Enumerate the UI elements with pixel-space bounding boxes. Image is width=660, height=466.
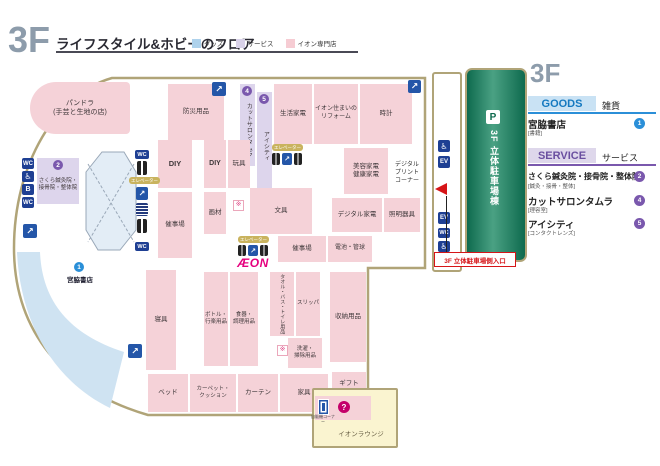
store-block-shoumei: 照明器具 <box>384 198 420 232</box>
lounge-label: イオンラウンジ <box>330 428 392 438</box>
service-item-category: [鍼灸・接骨・整体] <box>528 182 575 190</box>
store-block-slipper: スリッパ <box>296 272 320 336</box>
service-heading-ja: サービス <box>602 151 638 164</box>
toilet-icon: WC <box>135 150 149 159</box>
service-item-badge: 4 <box>634 195 645 206</box>
wheelchair-icon: ♿ <box>22 171 34 182</box>
store-block-pandora: パンドラ (手芸と生地の店) <box>30 82 130 134</box>
store-block-gazai: 画材 <box>204 192 226 234</box>
store-block-digital-kaden: デジタル家電 <box>332 198 382 232</box>
note-mark: ※ <box>277 345 288 356</box>
toilet-icon: WC <box>22 158 34 169</box>
toilet-icon: WC <box>438 228 450 238</box>
stairs-icon <box>136 203 148 216</box>
store-block-shunou: 収納用品 <box>330 272 366 362</box>
vending-caption: 自販機コーナー <box>310 415 336 425</box>
elevator-doors-icon <box>137 161 147 175</box>
toilet-icon: WC <box>135 242 149 251</box>
store-block-saijijo2: 催事場 <box>278 236 326 262</box>
goods-heading-ja: 雑貨 <box>602 99 620 112</box>
escalator-icon: ↗ <box>248 245 258 256</box>
store-block-towel: タオル・バス・トイレ用品 <box>270 272 294 336</box>
wheelchair-icon: ♿ <box>438 241 450 252</box>
service-item-category: [コンタクトレンズ] <box>528 229 575 237</box>
escalator-icon: ↗ <box>23 224 37 238</box>
goods-item-category: [書籍] <box>528 129 542 137</box>
elevator-label-chip: エレベーター <box>238 236 269 243</box>
elevator-doors-icon <box>272 153 280 165</box>
store-block-tokei: 時計 <box>360 84 412 144</box>
store-block-shokki: 食器・ 調理用品 <box>230 272 258 366</box>
map-badge-eyecity: 5 <box>259 94 269 104</box>
nursing-room-icon: B <box>22 184 34 195</box>
escalator-icon: ↗ <box>282 153 292 165</box>
escalator-icon: ↗ <box>128 344 142 358</box>
map-badge-tamura: 4 <box>242 86 252 96</box>
goods-item-badge: 1 <box>634 118 645 129</box>
parking-entrance-label: 3F 立体駐車場側入口 <box>434 252 516 267</box>
service-item-name: さくら鍼灸院・接骨院・整体院 <box>528 171 640 182</box>
aeon-logo: ÆON <box>234 256 272 270</box>
goods-underline <box>528 112 656 114</box>
store-block-bed: ベッド <box>148 374 188 412</box>
sidebar-floor-label: 3F <box>530 60 560 86</box>
vending-machine-icon <box>318 399 329 415</box>
elevator-doors-icon <box>238 245 246 256</box>
entrance-callout-line <box>446 196 447 254</box>
note-mark: ※ <box>233 200 244 211</box>
service-item-category: [理容室] <box>528 206 548 214</box>
store-block-shingu: 寝具 <box>146 270 176 370</box>
elevator-icon: EV <box>438 156 450 168</box>
digital-print-corner-label: デジタル プリント コーナー <box>390 156 424 192</box>
elevator-label-chip: エレベーター <box>272 144 303 151</box>
goods-heading: GOODS <box>528 96 596 111</box>
store-block-curtain: カーテン <box>238 374 278 412</box>
store-block-biyou-kaden: 美容家電 健康家電 <box>344 148 388 194</box>
map-badge-sakura: 2 <box>53 160 63 170</box>
store-block-denchi: 電池・管球 <box>328 236 372 262</box>
floor-map-page: 3F ライフスタイル&ホビーのフロア グッズ サービス イオン専門店 パンドラ … <box>0 0 660 466</box>
store-block-eyecity: アイシティ <box>257 92 272 188</box>
store-block-sentaku: 洗濯・ 掃除用品 <box>288 338 322 368</box>
service-heading: SERVICE <box>528 148 596 163</box>
entrance-arrow <box>435 183 447 195</box>
service-item-badge: 2 <box>634 171 645 182</box>
elevator-doors-icon <box>260 245 268 256</box>
store-block-bottle: ボトル・ 行楽用品 <box>204 272 228 366</box>
elevator-icon: EV <box>438 212 450 224</box>
escalator-icon: ↗ <box>212 82 226 96</box>
elevator-doors-icon <box>294 153 302 165</box>
wheelchair-icon: ♿ <box>438 140 450 152</box>
store-block-carpet: カーペット・ クッション <box>190 374 236 412</box>
parking-structure: P 3F 立体駐車場棟 <box>465 68 527 262</box>
store-block-saijijo1: 催事場 <box>158 192 192 258</box>
store-label-miyawaki: 宮脇書店 <box>56 274 104 284</box>
parking-p-icon: P <box>486 110 500 124</box>
atrium-void <box>86 152 136 250</box>
store-block-diy2: DIY <box>204 140 226 188</box>
parking-building-label: 3F 立体駐車場棟 <box>488 130 501 250</box>
elevator-label-chip: エレベーター <box>129 177 160 184</box>
store-block-bungu: 文具 <box>250 188 312 234</box>
escalator-icon: ↗ <box>408 80 421 93</box>
service-underline <box>528 164 656 166</box>
map-badge-miyawaki: 1 <box>74 262 84 272</box>
elevator-doors-icon <box>137 219 147 233</box>
store-block-reform: イオン住まいの リフォーム <box>314 84 358 144</box>
store-block-gangu: 玩具 <box>228 140 250 188</box>
toilet-icon: WC <box>22 197 34 208</box>
information-icon: ? <box>338 401 350 413</box>
store-block-seikatsu-kaden: 生活家電 <box>274 84 312 144</box>
escalator-icon: ↗ <box>136 187 148 200</box>
service-item-badge: 5 <box>634 218 645 229</box>
store-block-diy1: DIY <box>158 140 192 188</box>
